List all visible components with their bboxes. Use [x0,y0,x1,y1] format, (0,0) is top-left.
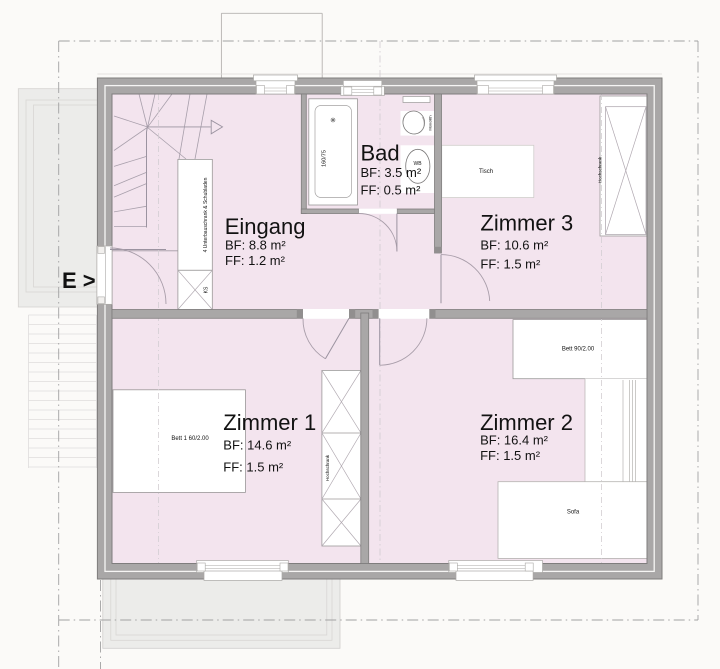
svg-text:BF: 14.6 m²: BF: 14.6 m² [223,438,292,453]
svg-text:160/75: 160/75 [322,150,328,167]
svg-text:FF: 0.5 m²: FF: 0.5 m² [361,183,422,198]
svg-text:4 Unterbauschrank & Schubladen: 4 Unterbauschrank & Schubladen [203,177,209,252]
svg-text:Bett 90/2.00: Bett 90/2.00 [562,347,595,353]
svg-text:Monolith: Monolith [428,115,433,130]
svg-text:Eingang: Eingang [225,214,306,239]
svg-text:Bad: Bad [361,141,400,166]
svg-text:FF: 1.5 m²: FF: 1.5 m² [223,460,284,475]
svg-text:BF: 16.4 m²: BF: 16.4 m² [480,433,549,448]
svg-text:BF: 10.6 m²: BF: 10.6 m² [480,238,549,253]
svg-text:Zimmer 2: Zimmer 2 [480,410,573,435]
svg-text:Zimmer 3: Zimmer 3 [480,211,573,236]
svg-text:FF: 1.5 m²: FF: 1.5 m² [480,257,541,272]
svg-text:Tisch: Tisch [479,169,493,175]
svg-text:BF: 8.8 m²: BF: 8.8 m² [225,238,286,253]
svg-text:Zimmer 1: Zimmer 1 [223,410,316,435]
svg-text:FF: 1.5 m²: FF: 1.5 m² [480,448,541,463]
svg-text:BF: 3.5 m²: BF: 3.5 m² [361,165,422,180]
svg-text:FF: 1.2 m²: FF: 1.2 m² [225,253,286,268]
svg-text:Sofa: Sofa [567,510,580,516]
svg-text:E >: E > [62,268,96,293]
svg-text:Hochschrank: Hochschrank [325,454,330,481]
svg-text:Bett 1 60/2.00: Bett 1 60/2.00 [171,436,209,442]
svg-text:KS: KS [204,286,210,293]
